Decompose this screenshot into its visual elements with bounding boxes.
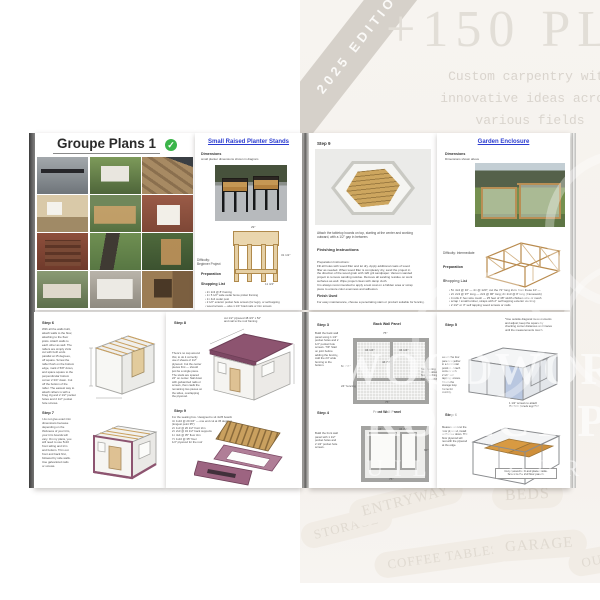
dim-label: 62 7/8": [341, 364, 350, 368]
dim-label: 34 1/4": [373, 427, 382, 431]
dim-label: 34 1/4": [365, 348, 374, 352]
difficulty-label: Difficulty: Beginner Project: [197, 258, 221, 266]
step-label: Step 3: [317, 322, 329, 327]
dim-label: 24" fencing: [341, 384, 356, 388]
text-line: the plywood.: [172, 395, 204, 399]
garden-photo: [475, 163, 565, 227]
page-planter: Small Raised Planter Stands Dimensions s…: [195, 133, 302, 310]
spine-bottom: [302, 312, 309, 488]
planter-box: [253, 176, 279, 210]
finishing-label: Finishing Instructions: [317, 247, 359, 252]
roof-note: cut 1/2" plywood 48 3/4" x 52"and nail t…: [224, 317, 296, 324]
cover-title: Groupe Plans 1: [53, 136, 160, 154]
project-photo: [37, 233, 88, 270]
step7-text: I do not give exact trimdimensions becau…: [42, 418, 82, 469]
finish-used-label: Finish Used: [317, 294, 337, 298]
project-photo: [90, 157, 141, 194]
cover-photo-grid: [37, 157, 193, 308]
dim-label: 34 1/4": [399, 348, 408, 352]
step-label: Step 5: [445, 322, 457, 327]
garden-frame-sketch: [481, 231, 565, 293]
front-panel-title: Front Wall Panel: [341, 410, 433, 414]
page-cover: Groupe Plans 1 ✓: [35, 133, 195, 310]
project-photo: [142, 271, 193, 308]
page-hexagon-step: Step 9 Attach the tabletop boards on top…: [309, 133, 437, 310]
shopping-list-label: Shopping List: [201, 282, 225, 286]
prep-instructions: Preparation Instructions:Fill all holes …: [317, 261, 433, 291]
book-right-edge: [570, 133, 576, 488]
page-wall-panels: Step 3 Build the back wallpanel using 1 …: [309, 312, 437, 488]
step-label: Step 6: [42, 320, 54, 325]
shed-frame-drawing: [86, 326, 162, 402]
page-shed-steps-8-9: Step 8 cut 1/2" plywood 48 3/4" x 52"and…: [166, 312, 302, 488]
shed-roof-drawing: [204, 326, 298, 406]
text-line: screws.: [315, 446, 345, 450]
project-photo: [142, 157, 193, 194]
note-line: For max width.: [421, 378, 437, 381]
tagline-line: various fields: [400, 110, 600, 132]
caption-line: outward, with a 1/2" gap in between.: [317, 235, 431, 239]
project-photo: [90, 271, 141, 308]
page-cage-steps-5-6: Step 5 *Use outside diagonal measurement…: [437, 312, 570, 488]
step-label: Step 8: [174, 320, 186, 325]
garden-title: Garden Enclosure: [437, 139, 570, 145]
project-photo: [90, 195, 141, 232]
dimensions-label: Dimensions: [445, 152, 465, 156]
step-label: Step 6: [445, 412, 457, 417]
dim-label: 44 7/8": [382, 360, 391, 364]
prep-line: piece to ensure color evenness and adhes…: [317, 288, 433, 292]
step-label: Step 7: [42, 410, 54, 415]
project-photo: [142, 195, 193, 232]
step4-text: Build the front wallpanel with 1 1/2"poc…: [315, 432, 345, 450]
project-photo: [37, 195, 88, 232]
sketch-dim-bottom: 11 3/4": [265, 282, 274, 286]
planter-box: [222, 178, 248, 212]
dimensions-note: small planter dimensions shown in diagra…: [201, 158, 258, 162]
preparation-label: Preparation: [201, 272, 221, 276]
text-line: or screws.: [42, 465, 82, 469]
dim-label: 75": [385, 400, 389, 404]
back-panel-drawing: 75" 62 7/8" 34 1/4" 34 1/4" 44 7/8" 24" …: [341, 330, 433, 406]
step8-text: There's no cap aroundthis; to do it corr…: [172, 352, 204, 399]
difficulty-label: Difficulty: Intermediate: [443, 251, 477, 255]
text-line: tapping screws.: [442, 377, 464, 381]
shopping-list: 2× 2x3 @ 8' framing1× 5 1/2" wide cedar …: [205, 291, 299, 308]
caption-line: Screw to the 2x3 floor panels.: [497, 473, 555, 476]
text-line: stability.: [442, 391, 464, 395]
shopping-list-item: wood screws — also 1 1/4" brad nails or …: [205, 305, 299, 308]
tagline-line: innovative ideas across: [400, 88, 600, 110]
step-label: Step 4: [317, 410, 329, 415]
project-photo: [37, 157, 88, 194]
dimensions-label: Dimensions: [201, 152, 221, 156]
sketch-dim-top: 29": [251, 225, 255, 229]
planter-photo: [215, 165, 287, 221]
cage-assembly-drawing: [461, 330, 565, 404]
project-photo: [37, 271, 88, 308]
project-photo: [142, 233, 193, 270]
product-image-canvas: 2025 EDITION +150 PLANS Custom carpentry…: [0, 0, 600, 600]
preparation-label: Preparation: [443, 265, 463, 269]
shed-trim-drawing: [84, 412, 162, 484]
dim-label: 60": [424, 448, 428, 452]
verified-check-icon: ✓: [165, 139, 177, 151]
sketch-dim-right: 31 1/2": [281, 253, 290, 257]
step6-text: With all the walls built,attach walls to…: [42, 328, 84, 406]
shopping-list: 5× 4x4 @ 10' — 4× @ 120"; cut the 72" lo…: [449, 289, 567, 308]
step-label: Step 9: [317, 141, 331, 147]
dim-label: 34 7/8": [399, 427, 408, 431]
back-panel-title: Back Wall Panel: [341, 322, 433, 326]
planter-sketch: 29" 31 1/2" 11 3/4": [221, 225, 293, 287]
front-panel-drawing: 34 1/4" 34 7/8" 60" 75": [347, 416, 431, 482]
dim-label: 75": [389, 477, 393, 481]
step3-text: Build the back wallpanel using 1 1/2"poc…: [315, 332, 341, 368]
dim-label: 75": [383, 331, 387, 335]
page-shed-steps-6-7: Step 6 With all the walls built,attach w…: [34, 312, 166, 488]
note-line: the face panels together: [509, 405, 565, 408]
hexagon-table-drawing: [315, 149, 431, 225]
floor-caption: Cut plywood to fit and place inside.Scre…: [495, 468, 557, 479]
shopping-list-label: Shopping List: [443, 279, 467, 283]
seating-box-exploded-drawing: [194, 415, 298, 487]
plans-headline: +150 PLANS: [386, 0, 600, 59]
text-line: bottom.: [315, 364, 341, 368]
page-garden: Garden Enclosure Dimensions Dimensions s…: [437, 133, 570, 310]
step-label: Step 9: [174, 408, 186, 413]
dimensions-note: Dimensions shown above: [445, 158, 479, 162]
text-line: hole screws.: [42, 402, 84, 406]
tagline: Custom carpentry withinnovative ideas ac…: [400, 66, 600, 132]
tagline-line: Custom carpentry with: [400, 66, 600, 88]
spine-top: [302, 133, 309, 310]
screw-note: 1 1/2" screws to attachthe face panels t…: [509, 402, 565, 409]
planter-title: Small Raised Planter Stands: [195, 139, 302, 145]
note-line: and nail to the roof framing: [224, 320, 296, 323]
cover-header: Groupe Plans 1 ✓: [35, 133, 195, 157]
step-caption: Attach the tabletop boards on top, start…: [317, 231, 431, 239]
project-photo: [90, 233, 141, 270]
step5-text: Attach the fourpanels togetherin a horiz…: [442, 356, 464, 395]
finish-used-line: For easy maintenance, choose a penetrati…: [317, 301, 435, 305]
side-note: Start fencing3in 1" to allowfloor attach…: [421, 368, 437, 381]
shopping-list-item: 2 1/2" or 3" self tapping wood screws or…: [449, 304, 567, 308]
